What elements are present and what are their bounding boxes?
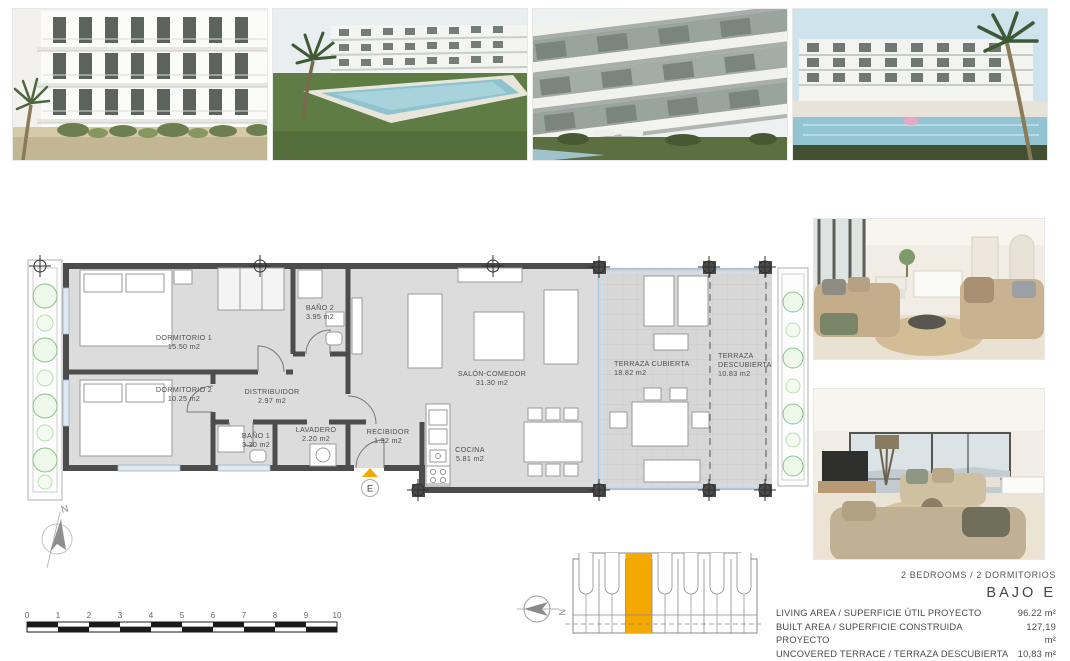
label-lavadero: LAVADERO <box>296 425 337 434</box>
exterior-photo-facade-art <box>13 9 268 161</box>
svg-text:7: 7 <box>242 611 247 620</box>
svg-text:1: 1 <box>56 611 61 620</box>
north-compass: N <box>34 502 104 574</box>
label-distribuidor-area: 2.97 m2 <box>258 396 286 405</box>
label-terraza-descubierta-2: DESCUBIERTA <box>718 360 772 369</box>
brochure-page: { "plan": { "north_label": "N", "entry_l… <box>0 0 1070 650</box>
svg-text:0: 0 <box>25 611 30 620</box>
scale-ticks: 012345678910 <box>25 611 342 620</box>
living-area-value: 96.22 m² <box>1018 607 1056 621</box>
summary-row-living: LIVING AREA / SUPERFICIE ÚTIL PROYECTO 9… <box>776 607 1056 621</box>
svg-text:10: 10 <box>333 611 342 620</box>
exterior-photo-pool-palm <box>792 8 1048 161</box>
label-recibidor-area: 1.92 m2 <box>374 436 402 445</box>
svg-text:8: 8 <box>273 611 278 620</box>
label-salon-area: 31.30 m2 <box>476 378 508 387</box>
key-plan-art: N <box>515 545 765 645</box>
keyplan-highlighted-unit <box>626 553 653 633</box>
label-bano2: BAÑO 2 <box>306 303 334 312</box>
keyplan-n-label: N <box>557 609 567 616</box>
built-area-value: 127,19 m² <box>1013 621 1056 648</box>
floor-plan-drawing: DORMITORIO 1 15.50 m2 DORMITORIO 2 10.25… <box>22 254 810 506</box>
label-bano2-area: 3.95 m2 <box>306 312 334 321</box>
label-dormitorio2-area: 10.25 m2 <box>168 394 200 403</box>
entry-letter: E <box>367 484 373 495</box>
label-dormitorio2: DORMITORIO 2 <box>156 385 212 394</box>
interior-photo-living1-art <box>814 219 1044 360</box>
scale-bar: 012345678910 <box>15 608 355 638</box>
exterior-photo-pool-lawn <box>272 8 528 161</box>
interior-photo-living2 <box>813 388 1045 560</box>
entry-marker: E <box>362 468 379 497</box>
interior-photo-living2-art <box>814 389 1044 560</box>
keyplan-compass: N <box>517 596 567 622</box>
svg-text:5: 5 <box>180 611 185 620</box>
interior-photo-living1 <box>813 218 1045 360</box>
bedrooms-line: 2 BEDROOMS / 2 DORMITORIOS <box>776 570 1056 580</box>
exterior-photo-facade <box>12 8 268 161</box>
label-lavadero-area: 2.20 m2 <box>302 434 330 443</box>
unit-label: BAJO E <box>776 585 1056 601</box>
label-cocina: COCINA <box>455 445 485 454</box>
svg-text:3: 3 <box>118 611 123 620</box>
north-compass-art: N <box>34 502 104 574</box>
svg-text:4: 4 <box>149 611 154 620</box>
label-recibidor: RECIBIDOR <box>367 427 410 436</box>
label-distribuidor: DISTRIBUIDOR <box>244 387 299 396</box>
label-bano1: BAÑO 1 <box>242 431 270 440</box>
built-area-label: BUILT AREA / SUPERFICIE CONSTRUIDA PROYE… <box>776 621 1013 648</box>
svg-text:9: 9 <box>304 611 309 620</box>
label-cocina-area: 5.81 m2 <box>456 454 484 463</box>
label-salon: SALÓN-COMEDOR <box>458 369 526 378</box>
compass-n-label: N <box>60 503 70 515</box>
summary-row-built: BUILT AREA / SUPERFICIE CONSTRUIDA PROYE… <box>776 621 1056 648</box>
exterior-photo-pool-palm-art <box>793 9 1048 161</box>
garden-strip-right <box>778 268 808 486</box>
living-area-label: LIVING AREA / SUPERFICIE ÚTIL PROYECTO <box>776 607 981 621</box>
label-terraza-descubierta-1: TERRAZA <box>718 351 754 360</box>
label-dormitorio1: DORMITORIO 1 <box>156 333 212 342</box>
key-plan: N <box>515 545 765 645</box>
label-terraza-descubierta-area: 10.83 m2 <box>718 369 750 378</box>
exterior-photo-pool-lawn-art <box>273 9 528 161</box>
label-dormitorio1-area: 15.50 m2 <box>168 342 200 351</box>
label-terraza-cubierta-area: 18.82 m2 <box>614 368 646 377</box>
keyplan-building <box>565 553 761 633</box>
floor-plan: DORMITORIO 1 15.50 m2 DORMITORIO 2 10.25… <box>22 254 810 506</box>
svg-text:2: 2 <box>87 611 92 620</box>
unit-summary: 2 BEDROOMS / 2 DORMITORIOS BAJO E LIVING… <box>776 570 1056 661</box>
exterior-photo-balconies <box>532 8 788 161</box>
label-bano1-area: 3.30 m2 <box>242 440 270 449</box>
scale-bar-art: 012345678910 <box>15 608 355 638</box>
exterior-photo-balconies-art <box>533 9 788 161</box>
label-terraza-cubierta: TERRAZA CUBIERTA <box>614 359 690 368</box>
garden-strip-left <box>28 260 62 500</box>
svg-text:6: 6 <box>211 611 216 620</box>
